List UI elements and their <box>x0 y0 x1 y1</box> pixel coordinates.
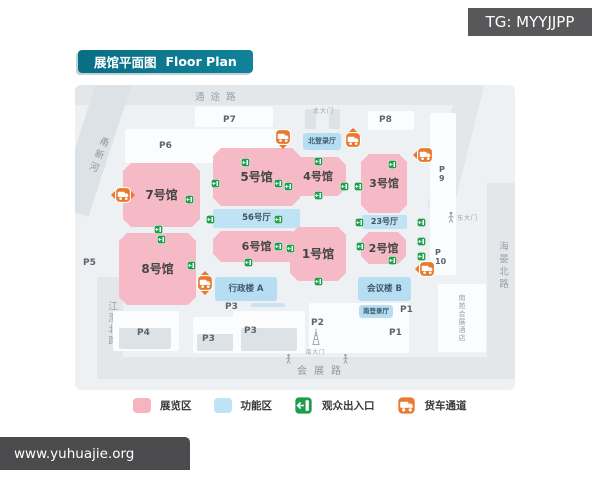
tower-icon <box>310 328 322 347</box>
truck-direction-arrow <box>131 191 139 199</box>
gate-label: 北大门 <box>313 106 334 115</box>
entrance-icon <box>274 179 283 188</box>
pedestrian-icon <box>342 353 349 365</box>
entrance-icon <box>274 242 283 251</box>
legend-item-exhibition: 展览区 <box>133 398 192 413</box>
hall-1[interactable]: 1号馆 <box>290 227 346 281</box>
truck-direction-arrow <box>349 124 357 132</box>
entrance-icon <box>388 256 397 265</box>
entrance-icon <box>417 218 426 227</box>
gate-north: 北大门 <box>313 106 334 115</box>
parking-label-P4: P4 <box>137 328 150 338</box>
telegram-watermark-badge: TG: MYYJJPP <box>468 8 592 36</box>
entrance-icon <box>356 242 365 251</box>
entrance-icon <box>284 182 293 191</box>
entrance-icon <box>187 261 196 270</box>
function-area-swatch <box>214 398 232 413</box>
gate-label: 东大门 <box>457 213 478 222</box>
legend-label-truck: 货车通道 <box>425 398 467 413</box>
entrance-icon <box>314 277 323 286</box>
truck-route-icon <box>419 261 435 277</box>
entrance-icon <box>314 191 323 200</box>
parking-label-P3: P3 <box>202 334 215 344</box>
truck-direction-arrow <box>279 145 287 153</box>
legend-label-entrance: 观众出入口 <box>322 398 375 413</box>
parking-label-P3: P3 <box>225 302 238 312</box>
entrance-icon <box>294 396 313 415</box>
parking-label-P1: P1 <box>389 328 402 338</box>
truck-direction-arrow <box>107 191 115 199</box>
entrance-icon <box>355 218 364 227</box>
truck-direction-arrow <box>409 151 417 159</box>
road-label-haiyan-north: 海晏北路 <box>495 241 509 291</box>
hall-admin-a[interactable]: 行政楼 A <box>215 277 277 301</box>
truck-route-icon <box>345 132 361 148</box>
parking-label-P8: P8 <box>379 115 392 125</box>
truck-route-icon <box>115 187 131 203</box>
truck-direction-arrow <box>411 265 419 273</box>
hall-23[interactable]: 23号厅 <box>362 215 407 229</box>
parking-label-P7: P7 <box>223 115 236 125</box>
hall-2[interactable]: 2号馆 <box>361 232 406 264</box>
parking-label-P5: P5 <box>83 258 96 268</box>
truck-icon <box>397 396 416 415</box>
parking-label-P1: P1 <box>400 305 413 315</box>
legend-label-exhibition: 展览区 <box>160 398 192 413</box>
entrance-icon <box>417 252 426 261</box>
hall-3[interactable]: 3号馆 <box>361 154 407 213</box>
exhibition-area-swatch <box>133 398 151 413</box>
entrance-icon <box>185 195 194 204</box>
entrance-icon <box>354 182 363 191</box>
entrance-icon <box>244 258 253 267</box>
gate-label: 南大门 <box>306 348 326 356</box>
entrance-icon <box>157 235 166 244</box>
truck-direction-arrow <box>201 267 209 275</box>
entrance-icon <box>241 158 250 167</box>
parking-label-P10: P 10 <box>435 248 446 266</box>
person-icon <box>447 211 455 224</box>
entrance-icon <box>314 157 323 166</box>
parking-label-P3: P3 <box>244 326 257 336</box>
road-label-tongtu: 通途路 <box>195 89 242 103</box>
entrance-icon <box>340 182 349 191</box>
structure-block <box>251 303 285 307</box>
legend: 展览区 功能区 观众出入口 货车通道 <box>133 396 489 415</box>
truck-direction-arrow <box>201 291 209 299</box>
page-title-zh: 展馆平面图 <box>94 52 157 71</box>
legend-item-truck: 货车通道 <box>397 396 467 415</box>
floor-plan-map: 通途路 会展路 海晏北路 江澄北路 甬新河 7号馆8号馆5号馆56号厅6号馆4号… <box>75 85 515 390</box>
entrance-icon <box>286 244 295 253</box>
hall-8[interactable]: 8号馆 <box>119 233 196 305</box>
pedestrian-icon <box>285 353 292 365</box>
truck-route-icon <box>417 147 433 163</box>
hotel-label: 南苑会展酒店 <box>457 294 467 342</box>
entrance-icon <box>206 215 215 224</box>
truck-route-icon <box>197 275 213 291</box>
entrance-icon <box>211 179 220 188</box>
road-top <box>75 85 467 105</box>
legend-item-function: 功能区 <box>214 398 273 413</box>
hotel-building: 南苑会展酒店 <box>438 284 486 352</box>
hall-south-lobby[interactable]: 南登录厅 <box>359 305 393 318</box>
parking-label-P2: P2 <box>311 318 324 328</box>
website-watermark-badge: www.yuhuajie.org <box>0 437 190 470</box>
gate-east: 东大门 <box>447 211 478 224</box>
entrance-icon <box>274 215 283 224</box>
entrance-icon <box>388 160 397 169</box>
parking-label-P6: P6 <box>159 141 172 151</box>
hall-conference-b[interactable]: 会议楼 B <box>358 277 411 301</box>
hall-56[interactable]: 56号厅 <box>213 209 300 228</box>
page: { "watermarks": { "top": "TG: MYYJJPP", … <box>0 0 600 480</box>
hall-north-lobby[interactable]: 北登录厅 <box>303 133 341 150</box>
road-label-huizhan: 会展路 <box>297 362 348 377</box>
legend-item-entrance: 观众出入口 <box>294 396 375 415</box>
legend-label-function: 功能区 <box>241 398 273 413</box>
gate-south: 南大门 <box>306 328 326 356</box>
parking-label-P9: P 9 <box>439 165 445 183</box>
entrance-icon <box>154 225 163 234</box>
page-title-en: Floor Plan <box>166 54 237 69</box>
hall-5[interactable]: 5号馆 <box>213 148 300 206</box>
page-title: 展馆平面图 Floor Plan <box>78 50 253 73</box>
entrance-icon <box>417 237 426 246</box>
truck-route-icon <box>275 129 291 145</box>
